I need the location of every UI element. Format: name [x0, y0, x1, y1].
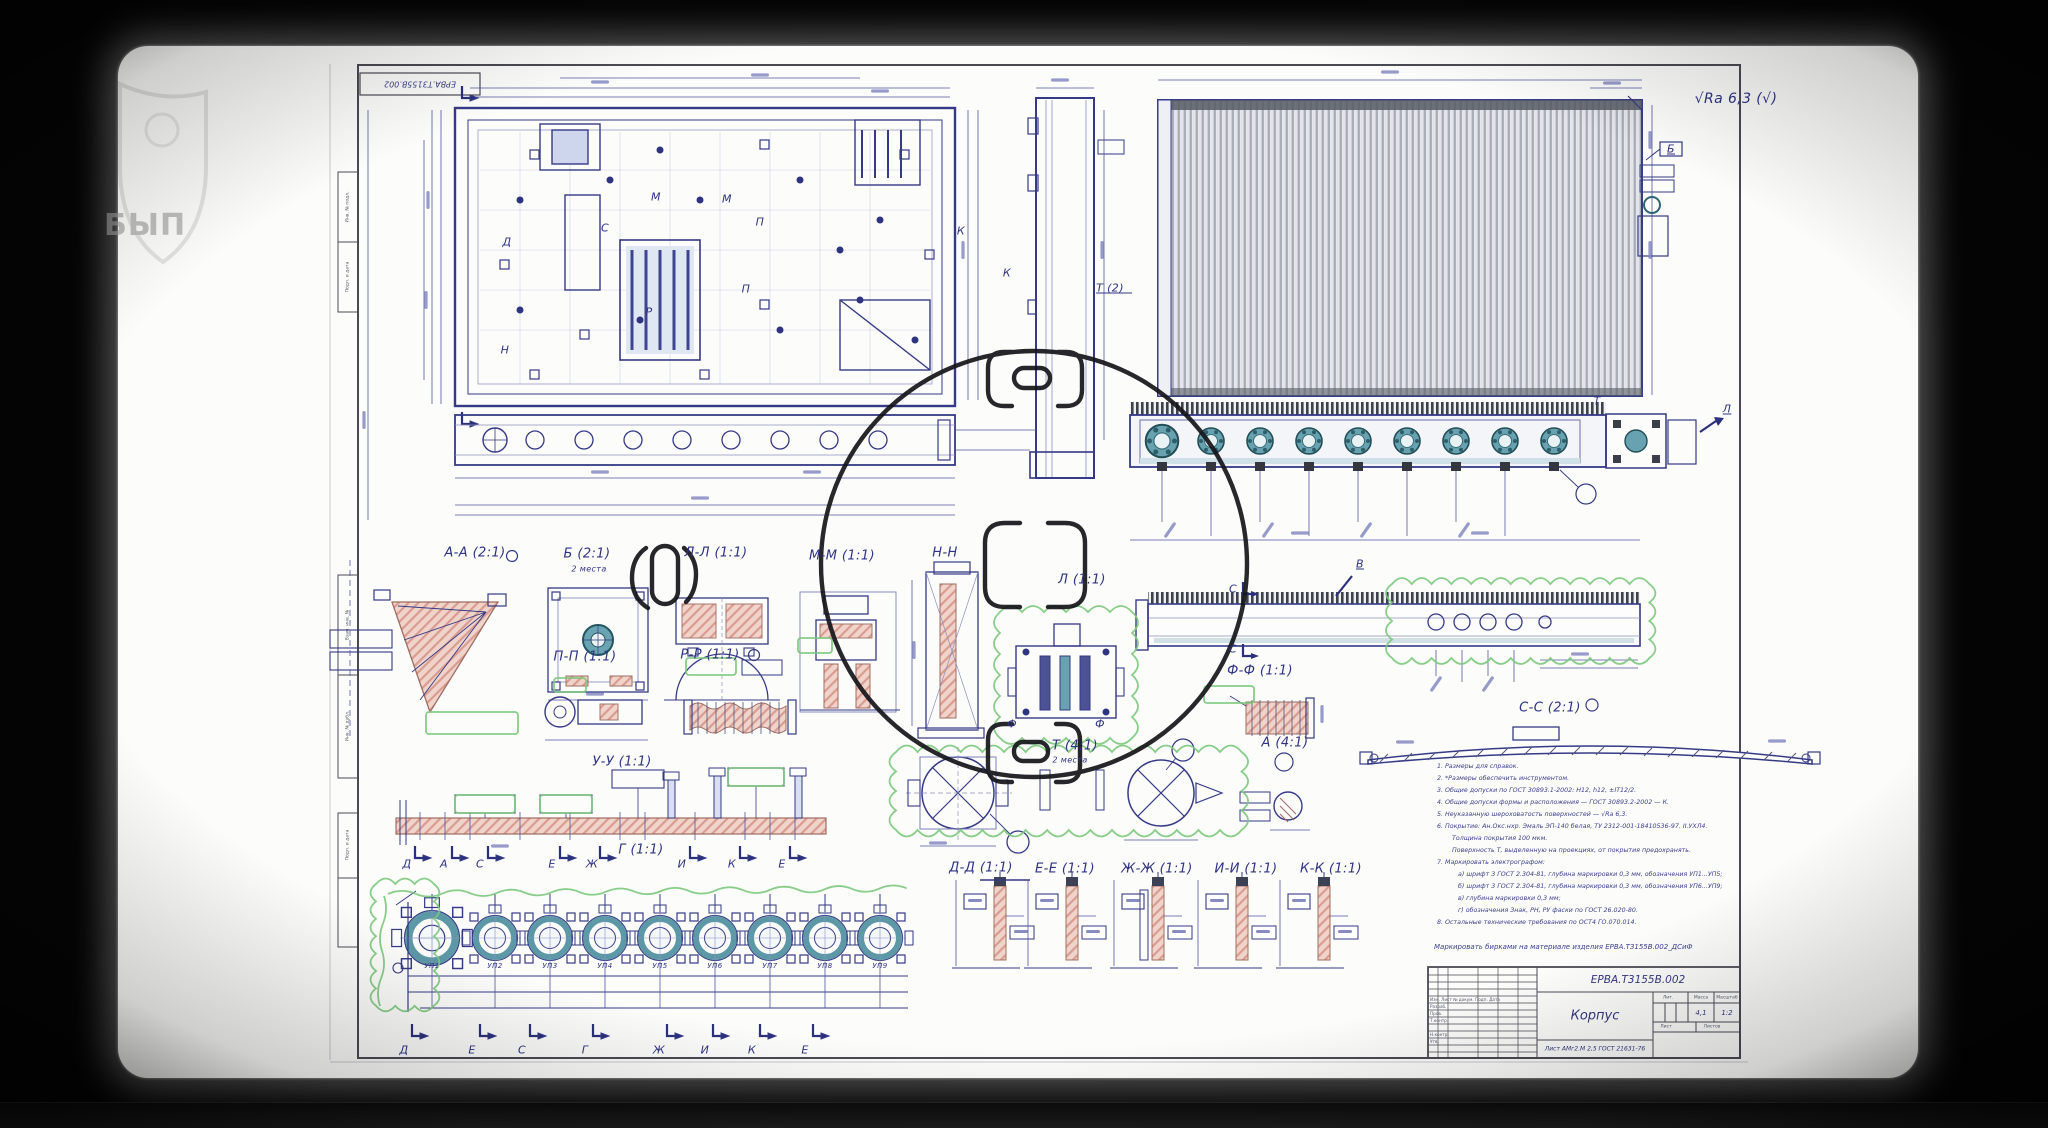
detail-ll: [664, 598, 780, 700]
plan-strip-view: [455, 415, 955, 515]
video-bottom-bar: [0, 1102, 2048, 1128]
detail-pp: [545, 697, 648, 740]
detail-a41: [1240, 753, 1310, 830]
detail-l: [1008, 624, 1124, 718]
pin-details: [952, 872, 1358, 968]
title-block: [1428, 967, 1740, 1058]
detail-nn: [912, 562, 984, 738]
detail-b: [548, 588, 648, 700]
drawing-linework: [0, 0, 2048, 1128]
ribbed-panel: [1158, 80, 1682, 396]
detail-mm: [800, 592, 900, 712]
detail-t41: [906, 747, 1104, 853]
side-view: [955, 88, 1132, 478]
video-frame: ЕРВА.Т3155В.002 √Ra 6,3 (√) А-А (2:1) Б …: [0, 0, 2048, 1128]
detail-rr: [684, 650, 796, 735]
shield-icon: [92, 70, 272, 340]
flange-row: [392, 846, 913, 1039]
connector-strip: [1130, 402, 1724, 540]
watermark-logo: БЫП: [92, 70, 272, 340]
detail-uu: [396, 768, 826, 845]
watermark-text: БЫП: [104, 208, 186, 243]
plan-view: [368, 78, 955, 520]
detail-a41-left: [1124, 739, 1222, 840]
cc-profile: [1360, 699, 1820, 764]
